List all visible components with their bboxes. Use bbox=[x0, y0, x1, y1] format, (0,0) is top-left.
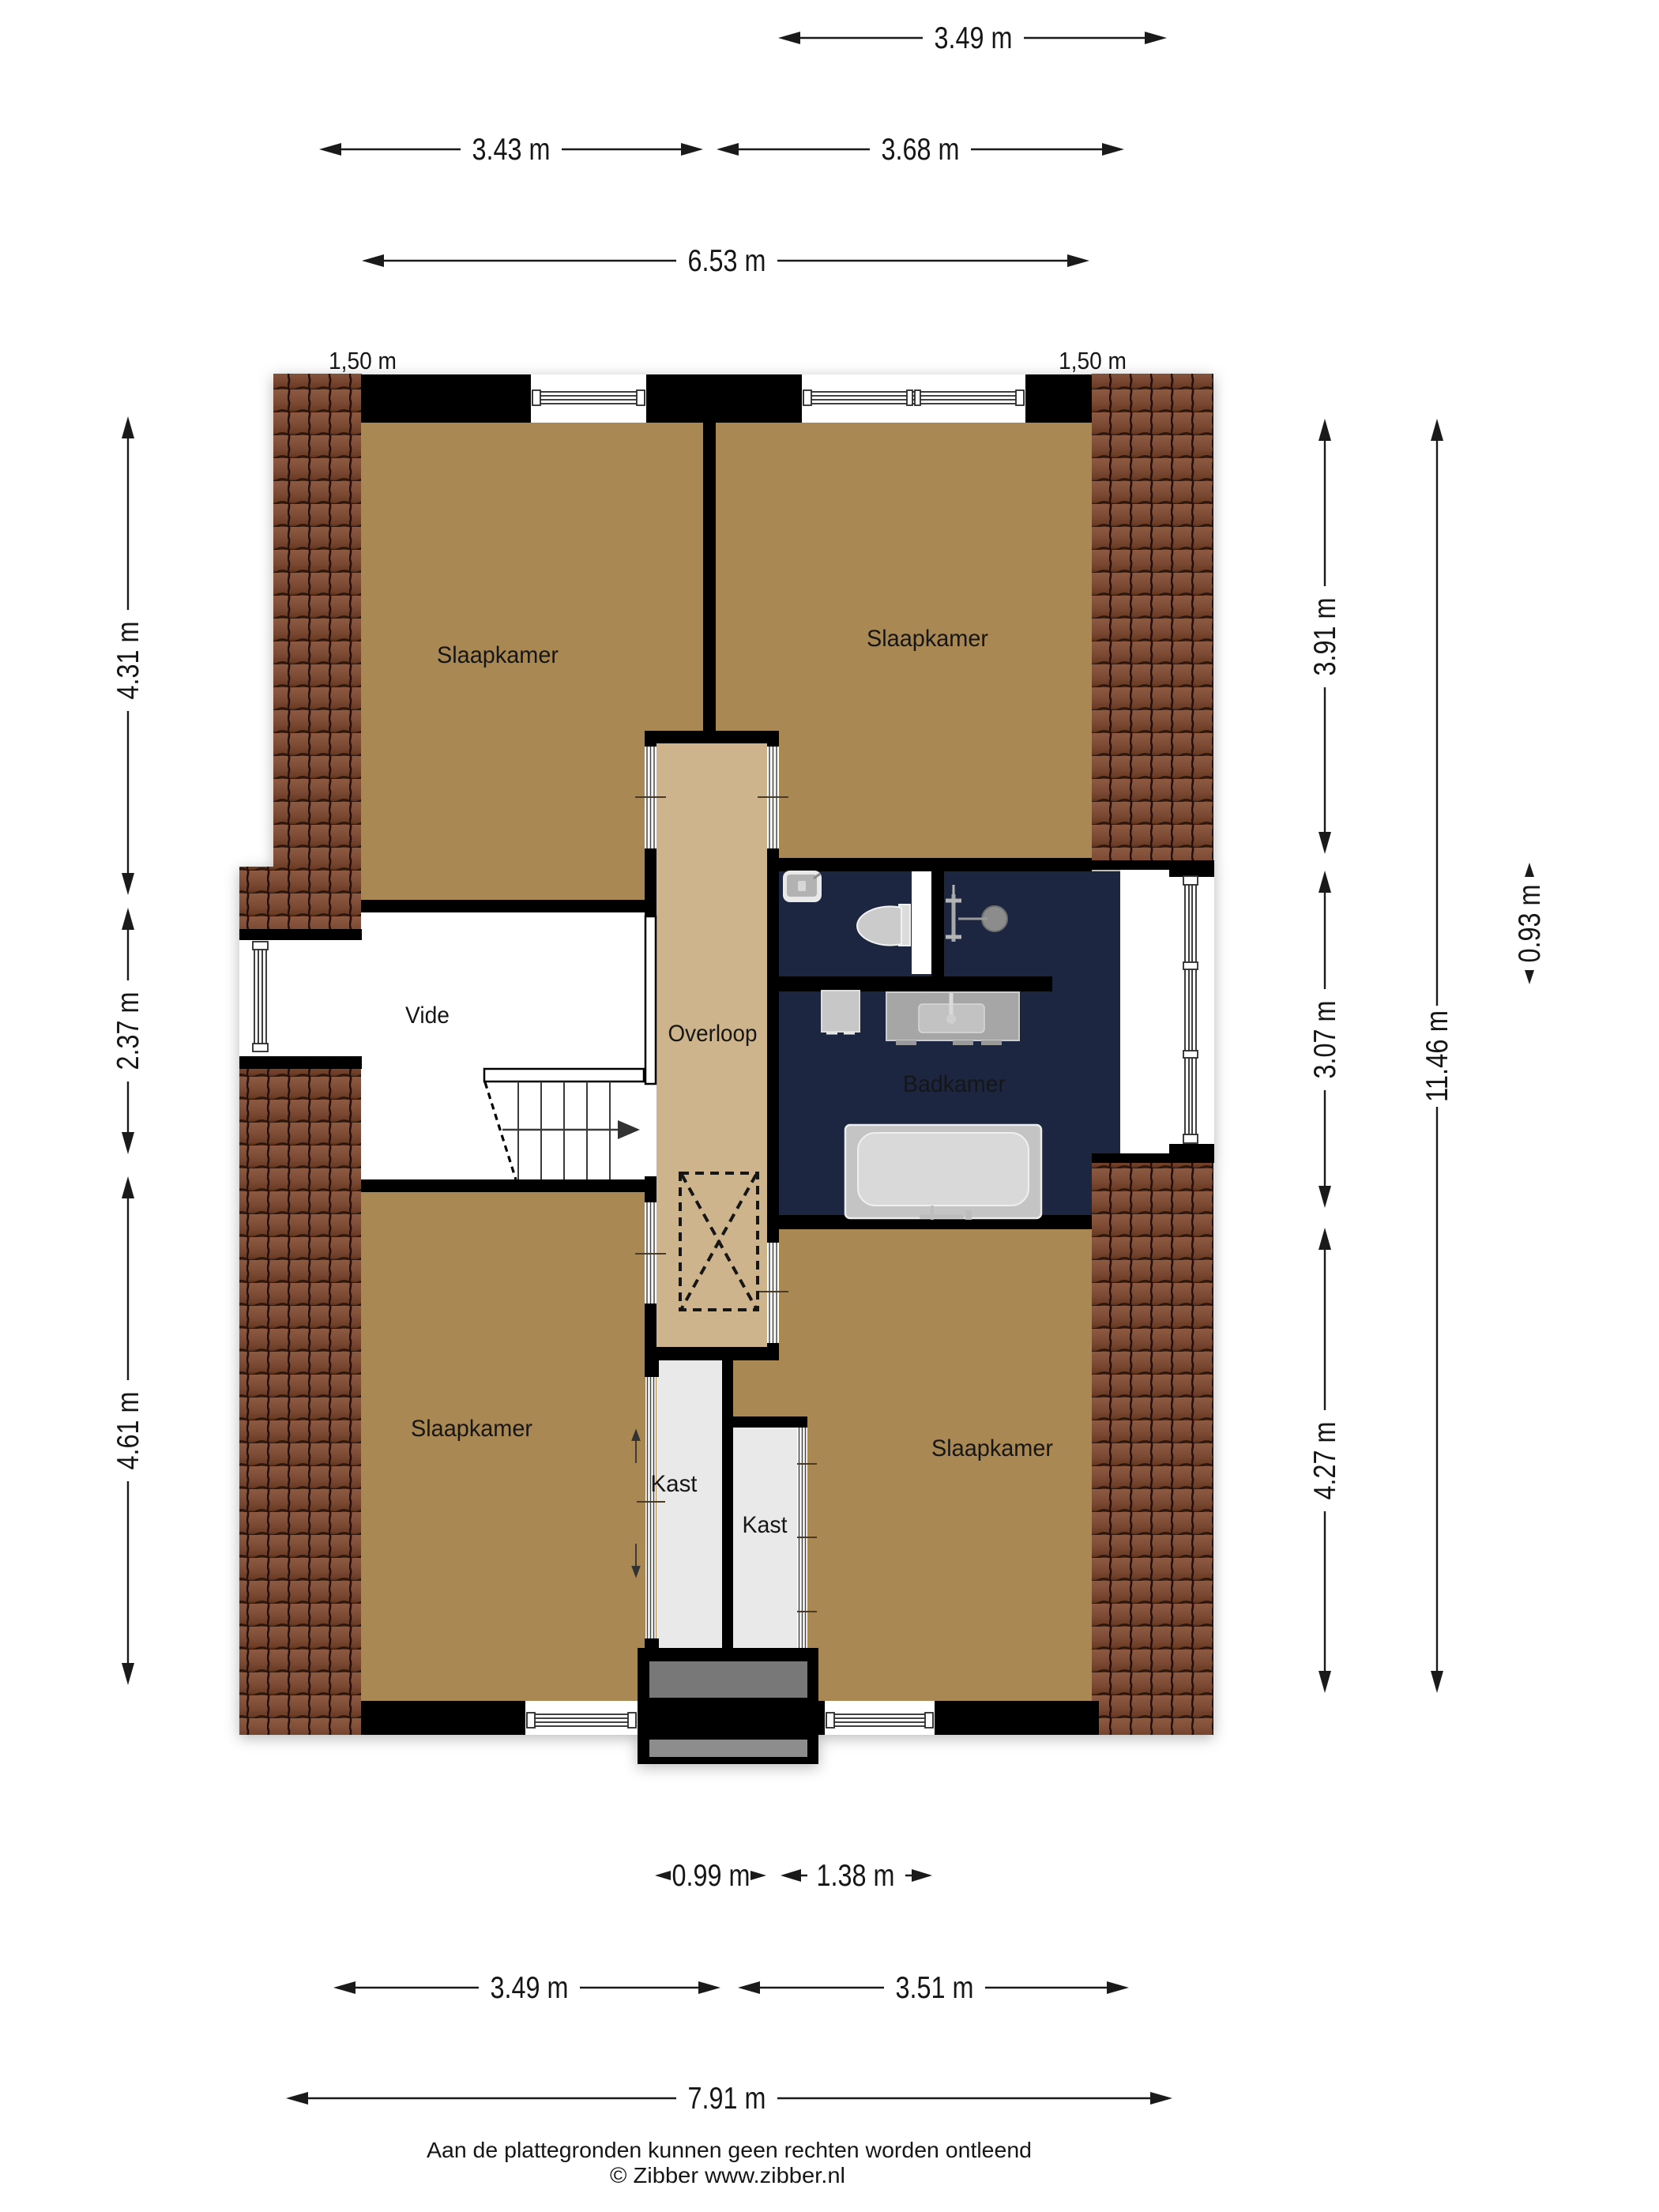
svg-text:Slaapkamer: Slaapkamer bbox=[437, 642, 559, 668]
svg-text:1.38 m: 1.38 m bbox=[817, 1859, 895, 1893]
svg-text:4.27 m: 4.27 m bbox=[1308, 1422, 1342, 1500]
svg-text:1,50 m: 1,50 m bbox=[1059, 347, 1127, 374]
svg-text:Slaapkamer: Slaapkamer bbox=[867, 626, 988, 652]
svg-text:3.43 m: 3.43 m bbox=[472, 133, 551, 167]
svg-text:Slaapkamer: Slaapkamer bbox=[411, 1416, 532, 1442]
svg-text:7.91 m: 7.91 m bbox=[688, 2082, 766, 2116]
svg-text:1,50 m: 1,50 m bbox=[329, 347, 397, 374]
svg-text:0.99 m: 0.99 m bbox=[672, 1859, 750, 1893]
svg-text:Aan de plattegronden kunnen ge: Aan de plattegronden kunnen geen rechten… bbox=[427, 2138, 1032, 2162]
svg-text:11.46 m: 11.46 m bbox=[1420, 1010, 1454, 1102]
svg-text:3.51 m: 3.51 m bbox=[896, 1971, 974, 2005]
svg-text:3.68 m: 3.68 m bbox=[882, 133, 960, 167]
svg-text:Kast: Kast bbox=[651, 1471, 698, 1497]
svg-text:Overloop: Overloop bbox=[668, 1021, 758, 1047]
svg-text:Badkamer: Badkamer bbox=[903, 1071, 1006, 1097]
svg-text:3.49 m: 3.49 m bbox=[935, 21, 1013, 55]
svg-text:3.49 m: 3.49 m bbox=[491, 1971, 569, 2005]
svg-text:Kast: Kast bbox=[743, 1512, 788, 1538]
svg-text:Slaapkamer: Slaapkamer bbox=[931, 1435, 1053, 1461]
svg-text:0.93 m: 0.93 m bbox=[1513, 885, 1547, 963]
svg-text:3.07 m: 3.07 m bbox=[1308, 1001, 1342, 1079]
svg-text:4.61 m: 4.61 m bbox=[111, 1392, 145, 1470]
svg-text:3.91 m: 3.91 m bbox=[1308, 598, 1342, 676]
svg-text:6.53 m: 6.53 m bbox=[688, 244, 766, 278]
svg-text:Vide: Vide bbox=[405, 1003, 450, 1029]
svg-text:© Zibber www.zibber.nl: © Zibber www.zibber.nl bbox=[610, 2163, 845, 2188]
svg-text:4.31 m: 4.31 m bbox=[111, 622, 145, 700]
svg-text:2.37 m: 2.37 m bbox=[111, 992, 145, 1070]
